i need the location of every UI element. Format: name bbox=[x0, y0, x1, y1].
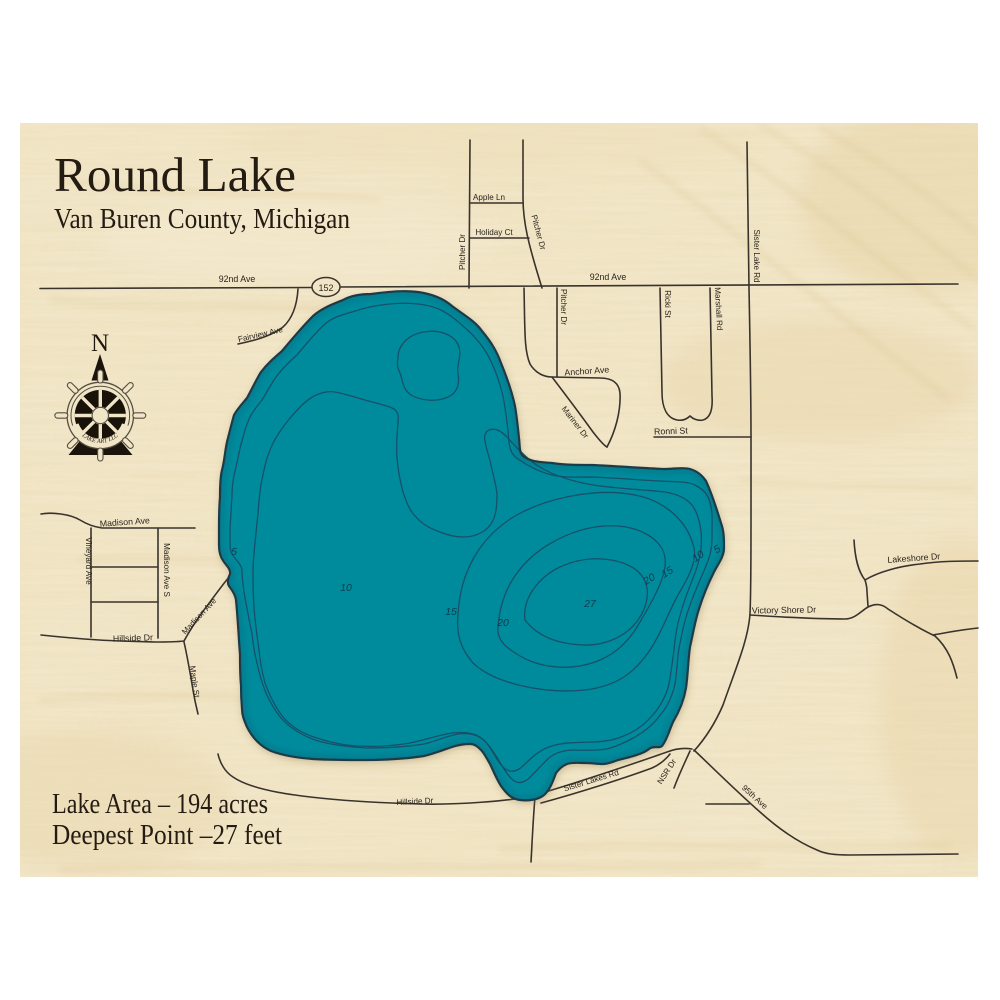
svg-text:Apple Ln: Apple Ln bbox=[473, 193, 505, 202]
svg-text:Round Lake: Round Lake bbox=[54, 147, 296, 202]
svg-text:27: 27 bbox=[583, 598, 597, 610]
svg-text:Ricki St: Ricki St bbox=[663, 290, 672, 318]
svg-text:Pitcher Dr: Pitcher Dr bbox=[458, 234, 467, 270]
svg-text:Victory Shore Dr: Victory Shore Dr bbox=[752, 604, 817, 615]
svg-text:Vineyard Ave: Vineyard Ave bbox=[84, 537, 93, 585]
svg-text:Madison Ave S: Madison Ave S bbox=[162, 543, 171, 597]
svg-text:20: 20 bbox=[496, 617, 509, 629]
svg-text:N: N bbox=[91, 330, 109, 357]
svg-text:Deepest Point –27 feet: Deepest Point –27 feet bbox=[52, 820, 282, 851]
svg-text:Sister Lake Rd: Sister Lake Rd bbox=[752, 229, 761, 282]
svg-text:152: 152 bbox=[318, 283, 333, 293]
svg-text:92nd Ave: 92nd Ave bbox=[590, 272, 627, 282]
svg-text:5: 5 bbox=[231, 546, 237, 558]
svg-text:Hillside Dr: Hillside Dr bbox=[113, 632, 153, 643]
svg-text:Lake Area – 194 acres: Lake Area – 194 acres bbox=[52, 789, 268, 820]
svg-text:10: 10 bbox=[340, 582, 352, 594]
svg-text:Holiday Ct: Holiday Ct bbox=[475, 228, 513, 237]
svg-text:92nd Ave: 92nd Ave bbox=[219, 274, 256, 284]
svg-text:Van Buren County, Michigan: Van Buren County, Michigan bbox=[54, 204, 350, 235]
svg-text:Ronni St: Ronni St bbox=[654, 425, 689, 436]
svg-text:15: 15 bbox=[445, 606, 457, 618]
svg-text:Pitcher Dr: Pitcher Dr bbox=[559, 289, 568, 325]
